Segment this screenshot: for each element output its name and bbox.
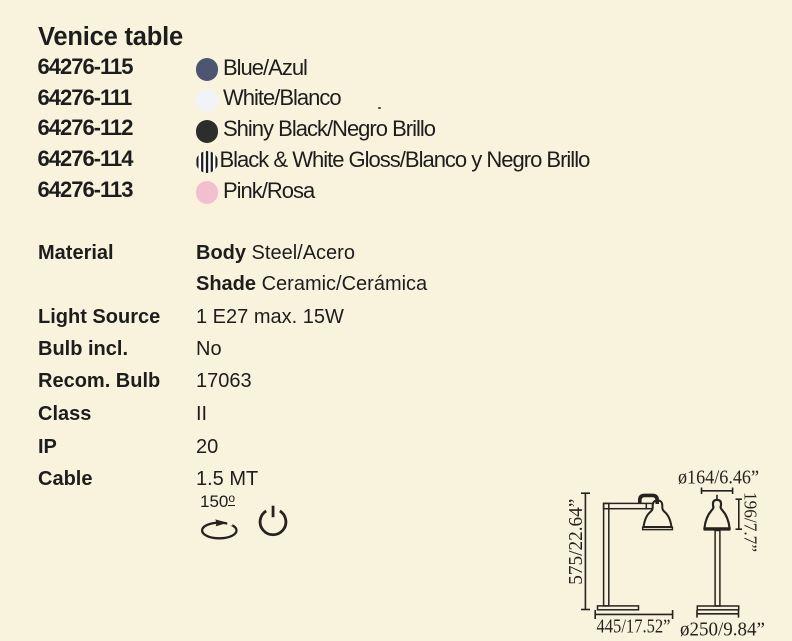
svg-text:575/22.64”: 575/22.64”	[566, 499, 587, 585]
svg-text:ø164/6.46”: ø164/6.46”	[678, 468, 759, 489]
svg-text:ø250/9.84”: ø250/9.84”	[680, 620, 765, 641]
svg-text:445/17.52”: 445/17.52”	[597, 617, 671, 638]
svg-text:196/7.7”: 196/7.7”	[741, 492, 761, 552]
